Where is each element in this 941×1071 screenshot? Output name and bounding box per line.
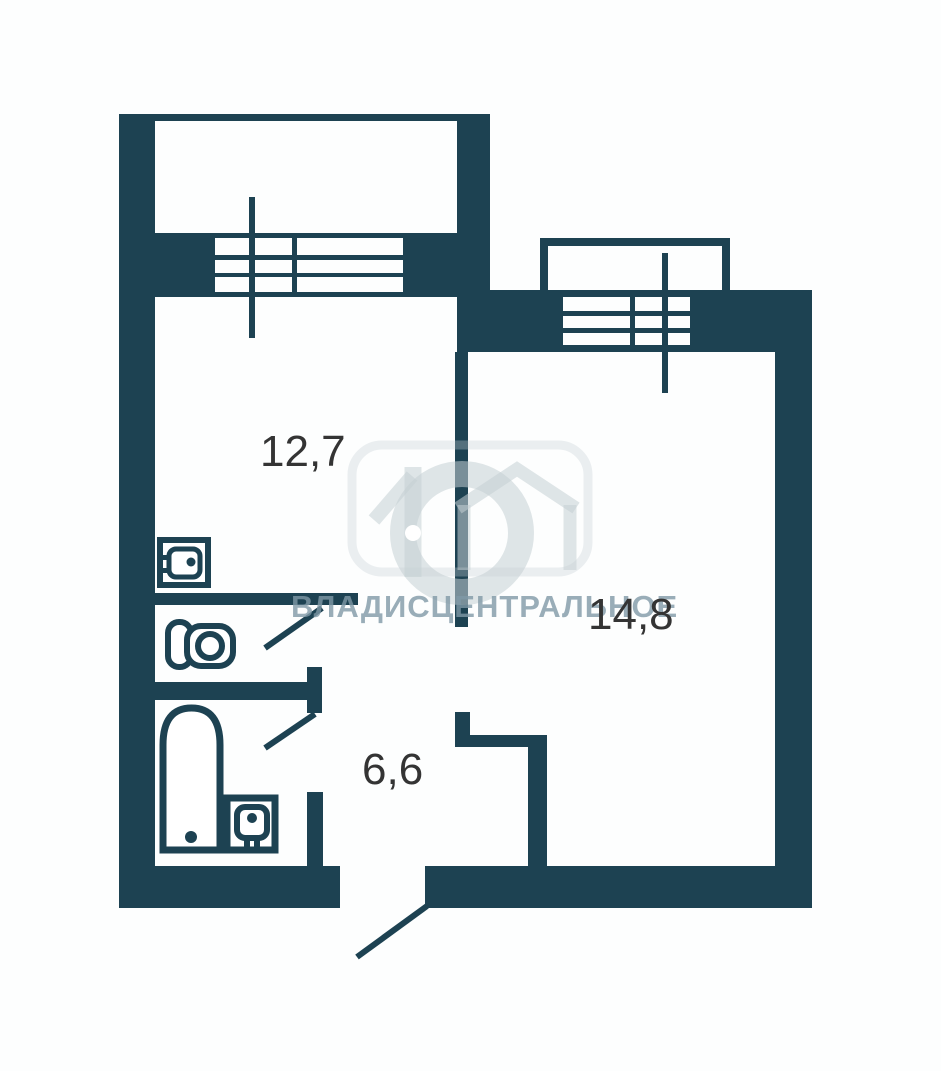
wall-balcony-left-right-column bbox=[457, 114, 490, 297]
window-frame-line bbox=[215, 233, 403, 238]
balcony-outline-right bbox=[722, 238, 730, 293]
wall-left-outer bbox=[119, 114, 155, 908]
window-mullion-line bbox=[215, 273, 403, 277]
window-right bbox=[563, 253, 690, 393]
window-axis-line bbox=[249, 197, 255, 338]
toilet-icon bbox=[168, 622, 233, 667]
window-axis-line bbox=[662, 253, 668, 393]
balcony-right-outline bbox=[540, 238, 730, 293]
wall-bottom-right bbox=[425, 866, 812, 908]
wall-right-outer bbox=[775, 290, 812, 908]
wall-window-left-side-a bbox=[155, 233, 215, 297]
room-label-right: 14,8 bbox=[588, 590, 674, 639]
window-divider-line bbox=[292, 235, 297, 295]
wall-right-top-a bbox=[457, 290, 563, 352]
window-frame-line bbox=[563, 345, 690, 352]
window-mullion-line bbox=[563, 311, 690, 316]
wall-door-stub bbox=[307, 667, 322, 713]
floor-plan-canvas: ВЛАДИСЦЕНТРАЛЬНОЕ 12,7 14,8 6,6 bbox=[0, 0, 941, 1071]
wall-bath-right bbox=[307, 792, 323, 867]
window-left bbox=[215, 197, 403, 338]
washbasin-icon bbox=[227, 798, 275, 850]
wall-hall-niche-top bbox=[455, 735, 547, 747]
house-logo-icon bbox=[352, 445, 588, 592]
door-leaf-entrance bbox=[357, 906, 427, 957]
balcony-outline-top bbox=[540, 238, 730, 246]
wall-balcony-left-top-edge bbox=[119, 114, 490, 121]
window-divider-line bbox=[630, 296, 635, 345]
window-mullion-line bbox=[215, 255, 403, 260]
balcony-outline-left bbox=[540, 238, 548, 293]
room-label-hallway: 6,6 bbox=[362, 745, 423, 794]
wall-bottom-left bbox=[119, 866, 340, 908]
window-frame-line bbox=[563, 290, 690, 297]
kitchen-sink-icon bbox=[160, 540, 208, 585]
room-label-left: 12,7 bbox=[260, 427, 346, 476]
logo-dot bbox=[405, 525, 421, 541]
wall-window-left-side-b bbox=[403, 233, 457, 297]
floor-plan: ВЛАДИСЦЕНТРАЛЬНОЕ 12,7 14,8 6,6 bbox=[0, 0, 941, 1071]
window-frame-line bbox=[215, 292, 403, 297]
bathtub-icon bbox=[163, 708, 220, 850]
wall-hall-niche-side bbox=[528, 747, 547, 867]
wall-toilet-bath-divider bbox=[119, 682, 322, 700]
door-leaf-bathroom bbox=[265, 714, 315, 748]
window-mullion-line bbox=[563, 328, 690, 333]
